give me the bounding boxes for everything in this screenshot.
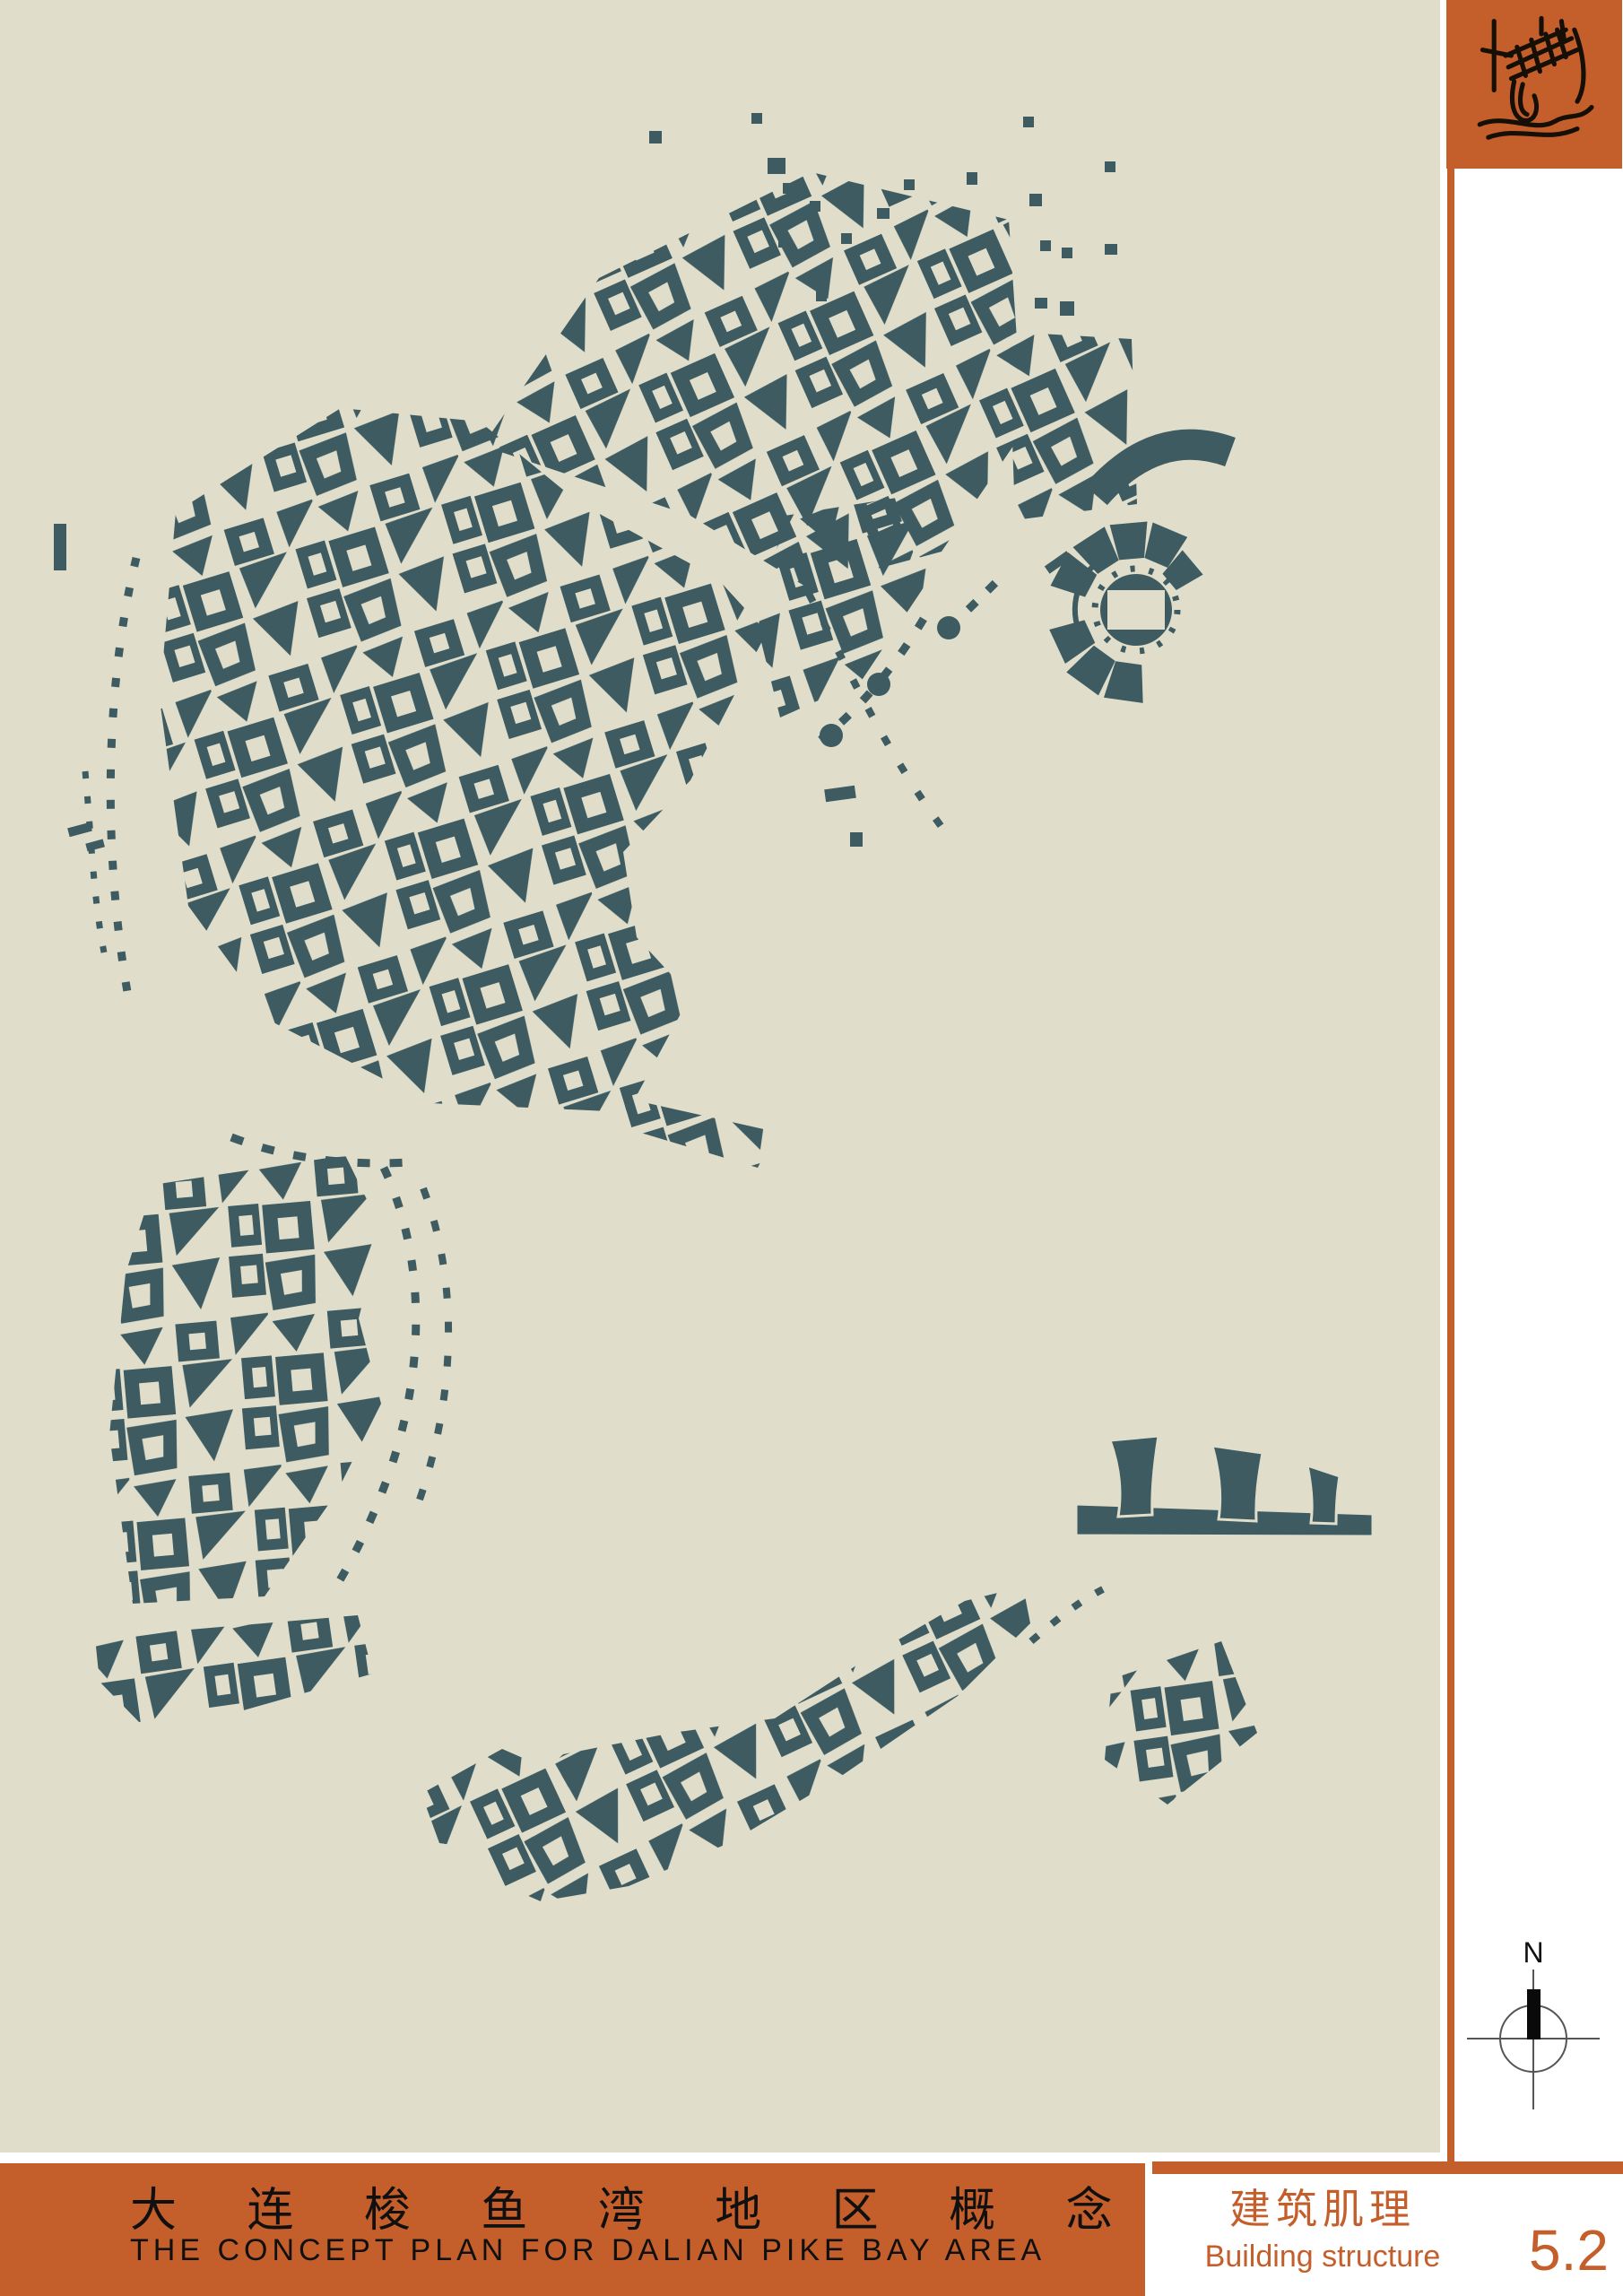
building-fabric-cluster-west [160,408,933,1168]
sheet-titles: 建筑肌理 Building structure [1152,2187,1493,2274]
stadium-figure [1049,522,1202,703]
right-column-divider [1447,169,1454,2175]
map-panel [0,0,1440,2152]
sheet-title-zh: 建筑肌理 [1152,2187,1493,2232]
sheet-label-box: 建筑肌理 Building structure 5.2 [1152,2161,1623,2296]
main-title-en: THE CONCEPT PLAN FOR DALIAN PIKE BAY ARE… [130,2233,1046,2268]
building-fabric-ribbon-south [95,1587,1257,1901]
title-band: 大 连 梭 鱼 湾 地 区 概 念 规 划 THE CONCEPT PLAN F… [0,2163,1145,2296]
presentation-board: { "poster": { "main_title_zh": "大 连 梭 鱼 … [0,0,1623,2296]
site-sketch-logo-icon [1462,13,1606,156]
building-fabric-cluster-southwest [109,1155,381,1604]
north-compass-icon: N [1449,1910,1623,2144]
sheet-title-en: Building structure [1152,2239,1493,2274]
sail-shaped-buildings [1076,1436,1373,1536]
sheet-number: 5.2 [1529,2217,1609,2283]
figure-ground-map [0,0,1440,2152]
logo-box [1446,0,1622,169]
compass-north-label: N [1523,1936,1543,1969]
